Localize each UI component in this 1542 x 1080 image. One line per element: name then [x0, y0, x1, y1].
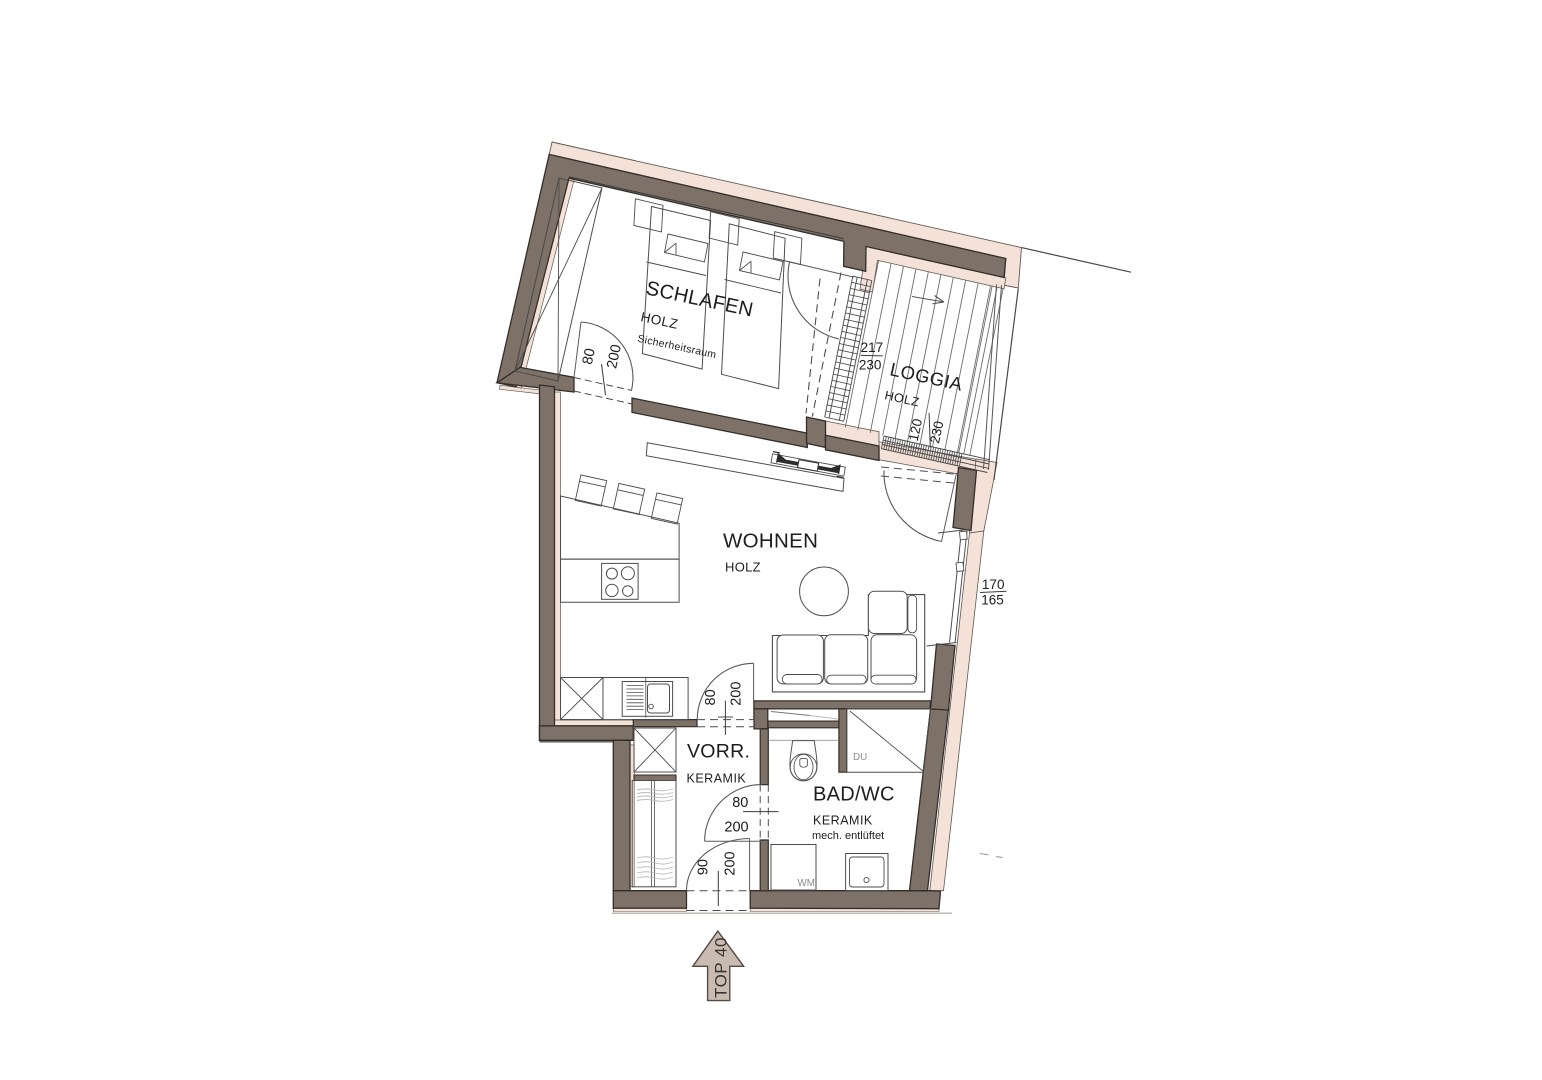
- svg-text:200: 200: [724, 820, 748, 836]
- svg-text:80: 80: [580, 347, 599, 366]
- svg-text:90: 90: [696, 859, 712, 875]
- svg-text:165: 165: [981, 592, 1004, 607]
- svg-text:200: 200: [728, 682, 744, 706]
- svg-text:170: 170: [982, 577, 1005, 592]
- svg-text:80: 80: [732, 795, 748, 811]
- svg-text:HOLZ: HOLZ: [725, 560, 761, 575]
- svg-text:230: 230: [859, 358, 882, 373]
- svg-text:DU: DU: [853, 752, 867, 763]
- svg-text:BAD/WC: BAD/WC: [813, 784, 895, 806]
- svg-text:KERAMIK: KERAMIK: [813, 814, 873, 828]
- svg-text:200: 200: [723, 851, 739, 875]
- svg-text:KERAMIK: KERAMIK: [687, 772, 747, 786]
- svg-text:WM: WM: [798, 878, 815, 889]
- svg-text:80: 80: [703, 689, 719, 705]
- svg-text:TOP 40: TOP 40: [712, 937, 731, 998]
- svg-text:WOHNEN: WOHNEN: [723, 530, 818, 553]
- svg-text:217: 217: [861, 340, 884, 355]
- svg-text:VORR.: VORR.: [687, 741, 750, 763]
- svg-text:mech. entlüftet: mech. entlüftet: [812, 830, 884, 842]
